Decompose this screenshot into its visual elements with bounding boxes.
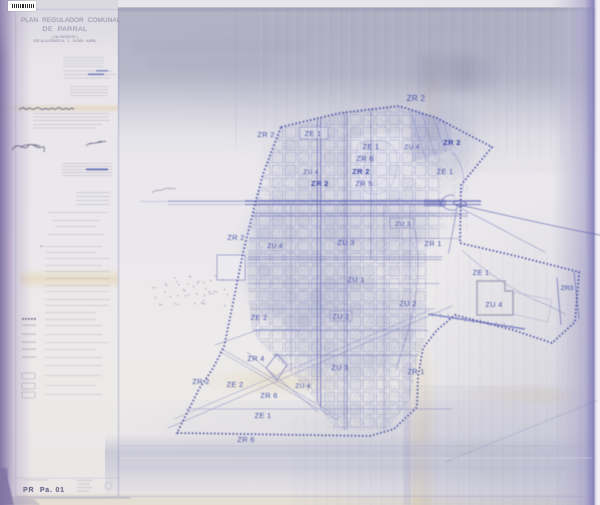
svg-text:ZU 3: ZU 3 — [395, 221, 411, 228]
svg-text:ZR 5: ZR 5 — [355, 179, 372, 188]
svg-text:ZE 1: ZE 1 — [473, 268, 490, 277]
svg-text:ZR 2: ZR 2 — [192, 377, 209, 386]
svg-text:ZR 6: ZR 6 — [237, 435, 254, 444]
svg-text:ZR 4: ZR 4 — [247, 354, 264, 363]
svg-text:ZR3: ZR3 — [561, 285, 574, 292]
svg-text:ZE 1: ZE 1 — [255, 411, 272, 420]
svg-text:ZE 1: ZE 1 — [363, 142, 380, 151]
svg-text:ZE 2: ZE 2 — [227, 380, 244, 389]
svg-text:ZU 4: ZU 4 — [404, 144, 420, 151]
svg-text:ZR 2: ZR 2 — [407, 94, 426, 103]
svg-text:ZU 4: ZU 4 — [267, 243, 283, 250]
svg-text:ZE 1: ZE 1 — [305, 129, 322, 138]
svg-text:ZR 2: ZR 2 — [227, 233, 244, 242]
svg-text:ZU 4: ZU 4 — [295, 383, 311, 390]
svg-text:ZR 2: ZR 2 — [352, 167, 370, 176]
svg-text:ZE 1: ZE 1 — [437, 167, 454, 176]
svg-text:ZR 2: ZR 2 — [311, 179, 329, 188]
svg-text:ZR 6: ZR 6 — [356, 154, 373, 163]
svg-text:ZU 2: ZU 2 — [332, 312, 349, 321]
svg-text:ZU 3: ZU 3 — [331, 363, 348, 372]
svg-text:ZU 4: ZU 4 — [485, 300, 502, 309]
svg-text:ZU 1: ZU 1 — [347, 275, 364, 284]
svg-text:ZR 2: ZR 2 — [443, 138, 461, 147]
svg-text:ZR 1: ZR 1 — [424, 239, 441, 248]
svg-text:ZU 4: ZU 4 — [303, 169, 319, 176]
svg-text:ZU 3: ZU 3 — [337, 238, 354, 247]
svg-text:ZR 2: ZR 2 — [257, 130, 274, 139]
svg-text:ZR 6: ZR 6 — [260, 391, 277, 400]
svg-text:ZE 2: ZE 2 — [251, 313, 268, 322]
